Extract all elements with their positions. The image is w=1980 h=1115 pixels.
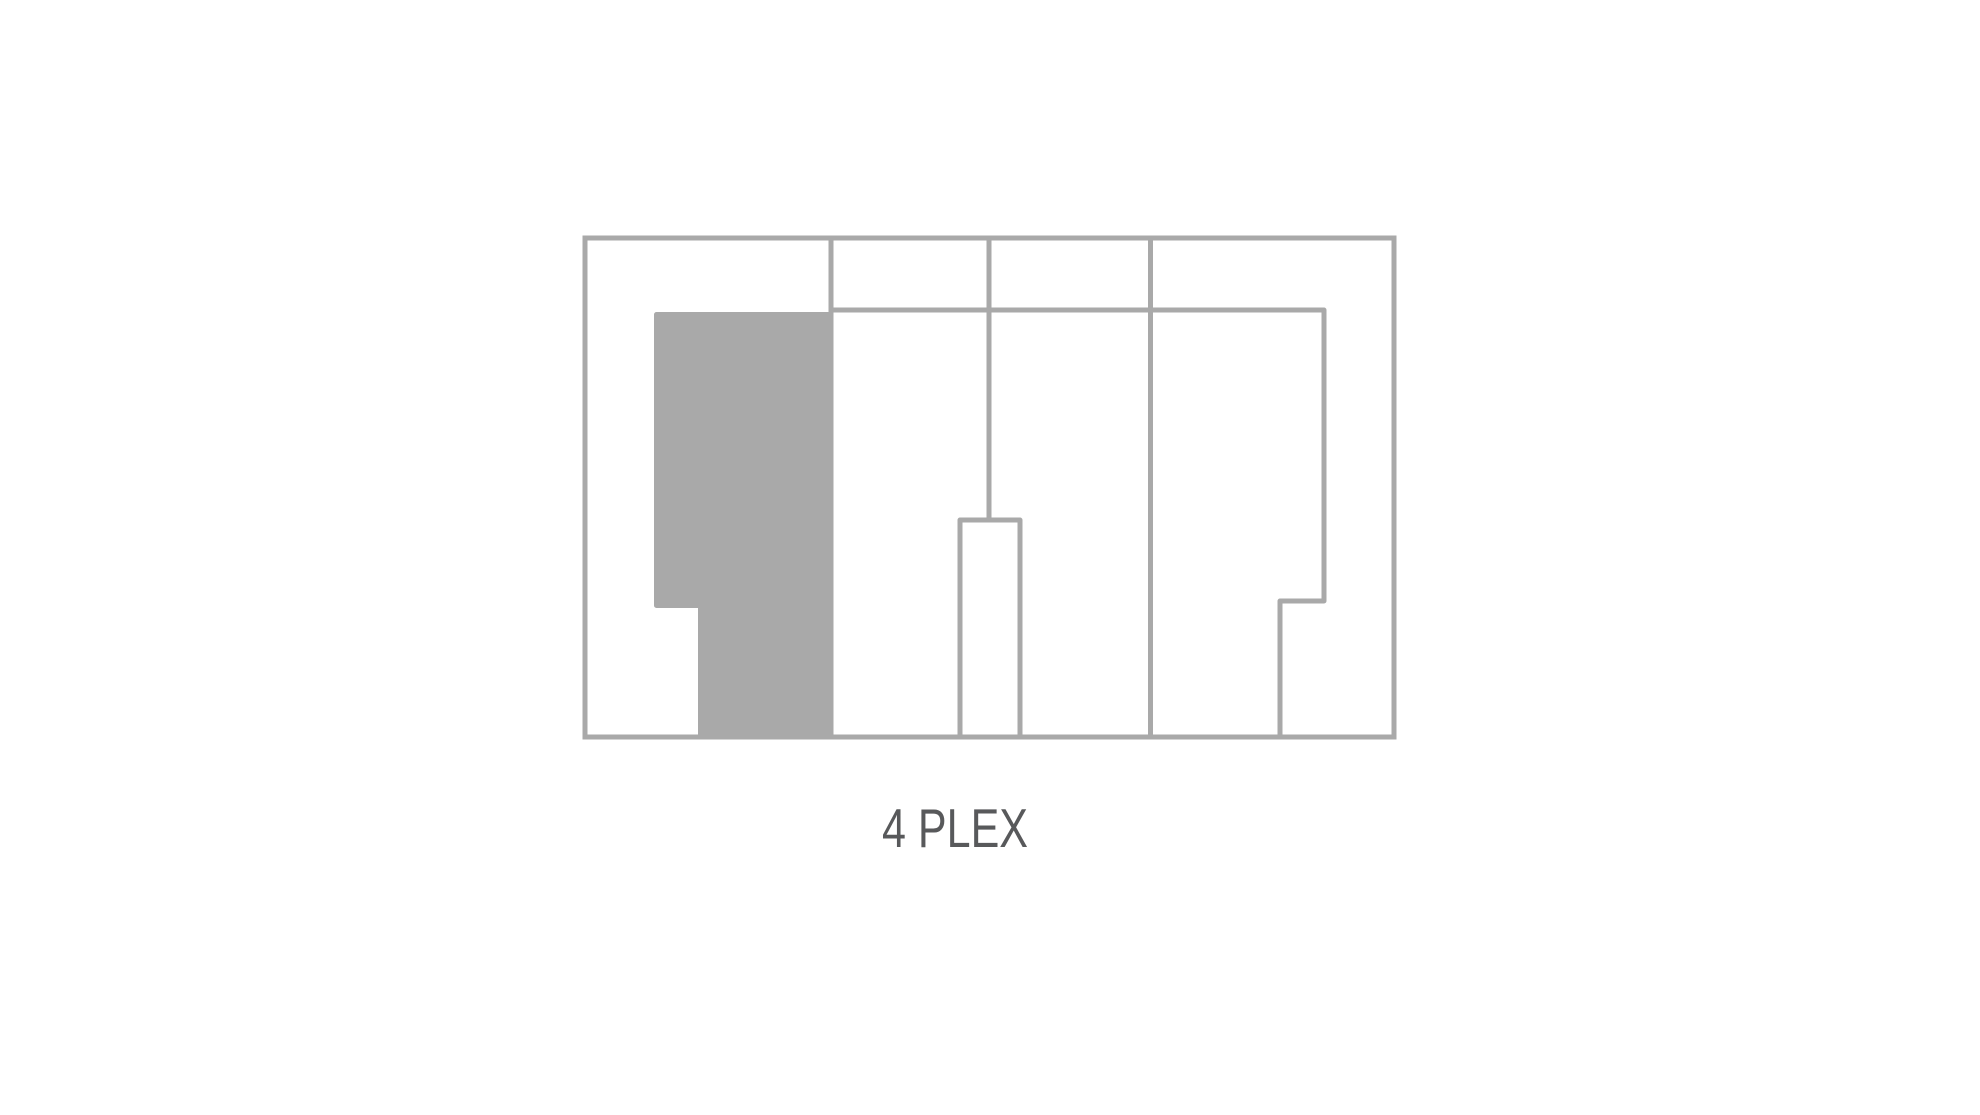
svg-text:4 PLEX: 4 PLEX	[882, 797, 1028, 859]
